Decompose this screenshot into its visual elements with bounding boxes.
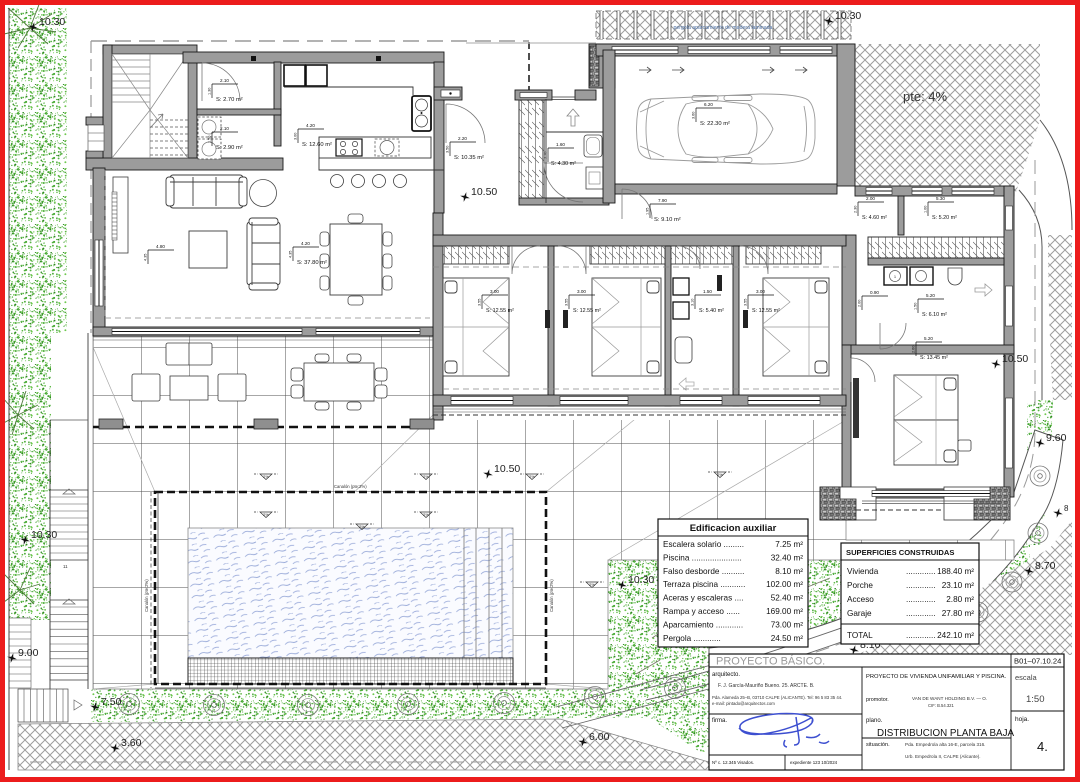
svg-text:expediente 123 10/2024: expediente 123 10/2024	[790, 760, 838, 765]
svg-text:Escalera solario .........: Escalera solario .........	[663, 540, 744, 549]
svg-text:5.20: 5.20	[924, 336, 933, 341]
svg-text:3.00: 3.00	[490, 289, 499, 294]
svg-text:.............: .............	[906, 631, 936, 640]
svg-text:10.30: 10.30	[628, 574, 654, 586]
svg-text:.............: .............	[906, 581, 936, 590]
svg-text:2%: 2%	[423, 512, 429, 517]
svg-text:2.70: 2.70	[544, 152, 548, 159]
svg-text:F. J. García-Mauriño Bueno.: F. J. García-Mauriño Bueno. 25. ARCTE. B…	[718, 683, 814, 689]
svg-text:TOTAL: TOTAL	[847, 631, 873, 640]
svg-text:32.40 m²: 32.40 m²	[771, 553, 804, 562]
svg-text:e-mail: pintado@arquitectos.co: e-mail: pintado@arquitectos.com	[712, 701, 775, 706]
svg-text:PROYECTO DE VIVIENDA UNIFAM: PROYECTO DE VIVIENDA UNIFAMILIAR Y PISCI…	[866, 674, 1007, 680]
svg-text:8: 8	[1064, 504, 1069, 513]
svg-text:Edificacion auxiliar: Edificacion auxiliar	[690, 523, 777, 534]
svg-text:2.60: 2.60	[912, 346, 916, 353]
svg-text:8.70: 8.70	[1035, 560, 1056, 572]
svg-text:DISTRIBUCION PLANTA BAJA: DISTRIBUCION PLANTA BAJA	[877, 728, 1014, 739]
svg-text:2.10: 2.10	[220, 126, 229, 131]
svg-text:2%: 2%	[263, 512, 269, 517]
svg-text:S: 2.70 m²: S: 2.70 m²	[216, 97, 243, 103]
svg-text:7.90: 7.90	[658, 198, 667, 203]
svg-text:4.: 4.	[1037, 739, 1048, 754]
svg-text:.............: .............	[906, 567, 936, 576]
svg-text:3.55: 3.55	[478, 299, 482, 306]
svg-text:Nº c. 12.345 Visados.: Nº c. 12.345 Visados.	[712, 760, 754, 765]
svg-text:3.60: 3.60	[692, 112, 696, 119]
svg-text:S: 22.30 m²: S: 22.30 m²	[700, 121, 730, 127]
svg-text:3.50: 3.50	[446, 146, 450, 153]
svg-text:4.20: 4.20	[301, 241, 310, 246]
svg-text:Aparcamiento ............: Aparcamiento ............	[663, 620, 743, 629]
svg-text:1.50: 1.50	[703, 289, 712, 294]
svg-text:2.00: 2.00	[858, 300, 862, 307]
svg-text:3.00: 3.00	[294, 133, 298, 140]
svg-text:1.00: 1.00	[924, 206, 928, 213]
svg-text:242.10 m²: 242.10 m²	[937, 631, 974, 640]
svg-text:S: 12.60 m²: S: 12.60 m²	[302, 142, 332, 148]
svg-text:4.20: 4.20	[306, 123, 315, 128]
svg-text:Canalón (pte:2%): Canalón (pte:2%)	[549, 579, 554, 612]
svg-text:Terraza piscina ...........: Terraza piscina ...........	[663, 580, 745, 589]
svg-text:Pda. Alameda 25–B, 03710 CALPE: Pda. Alameda 25–B, 03710 CALPE (ALICANTE…	[712, 695, 842, 700]
svg-text:23.10 m²: 23.10 m²	[942, 581, 975, 590]
svg-text:10.30: 10.30	[31, 529, 57, 541]
svg-text:9.60: 9.60	[1046, 432, 1067, 444]
svg-text:10.30: 10.30	[835, 10, 861, 22]
svg-text:VAN DE WANT HOLDING B.V. — O: VAN DE WANT HOLDING B.V. — O.	[912, 696, 987, 701]
svg-text:Urb. Empedrola II, CALPE (Al: Urb. Empedrola II, CALPE (Alicante).	[905, 754, 981, 759]
svg-text:S: 2.90 m²: S: 2.90 m²	[216, 145, 243, 151]
svg-text:8.10 m²: 8.10 m²	[775, 567, 803, 576]
svg-text:2%: 2%	[423, 474, 429, 479]
svg-text:Rampa y acceso ......: Rampa y acceso ......	[663, 607, 740, 616]
svg-text:S: 12.55 m²: S: 12.55 m²	[573, 308, 601, 314]
svg-text:2.20: 2.20	[458, 136, 467, 141]
svg-text:5.30: 5.30	[936, 196, 945, 201]
svg-text:S: 5.40 m²: S: 5.40 m²	[699, 308, 724, 314]
svg-text:S: 12.55 m²: S: 12.55 m²	[752, 308, 780, 314]
svg-text:0.90: 0.90	[870, 290, 879, 295]
svg-text:Piscina ......................: Piscina ......................	[663, 553, 742, 562]
svg-text:9.00: 9.00	[18, 647, 39, 659]
svg-text:1.50: 1.50	[914, 303, 918, 310]
svg-text:firma.: firma.	[712, 718, 727, 724]
svg-text:2%: 2%	[717, 472, 723, 477]
svg-text:promotor.: promotor.	[866, 697, 889, 703]
svg-text:10.50: 10.50	[1002, 353, 1028, 365]
svg-text:3.55: 3.55	[565, 299, 569, 306]
svg-text:S: 10.35 m²: S: 10.35 m²	[454, 155, 484, 161]
svg-text:hoja.: hoja.	[1015, 716, 1029, 723]
svg-text:S: 12.55 m²: S: 12.55 m²	[486, 308, 514, 314]
svg-text:arquitecto.: arquitecto.	[712, 672, 740, 678]
svg-text:pergola aparcamiento de madera: pergola aparcamiento de madera laminada	[674, 25, 773, 31]
svg-text:4.80: 4.80	[156, 244, 165, 249]
svg-text:plano.: plano.	[866, 718, 883, 724]
svg-text:7.25 m²: 7.25 m²	[775, 540, 803, 549]
svg-text:10.50: 10.50	[494, 463, 520, 475]
svg-text:3.00: 3.00	[577, 289, 586, 294]
svg-text:2.00: 2.00	[866, 196, 875, 201]
svg-text:.............: .............	[906, 609, 936, 618]
svg-text:Vivienda: Vivienda	[847, 567, 879, 576]
svg-text:PROYECTO BÁSICO.: PROYECTO BÁSICO.	[716, 655, 825, 668]
svg-text:S: 37.80 m²: S: 37.80 m²	[297, 260, 327, 266]
svg-text:52.40 m²: 52.40 m²	[771, 594, 804, 603]
svg-text:1.50: 1.50	[208, 136, 212, 143]
svg-text:2.80 m²: 2.80 m²	[946, 595, 974, 604]
svg-text:10.30: 10.30	[39, 16, 65, 28]
svg-text:Porche: Porche	[847, 581, 873, 590]
svg-text:S: 5.20 m²: S: 5.20 m²	[932, 215, 957, 221]
svg-text:10.50: 10.50	[471, 186, 497, 198]
svg-text:5.20: 5.20	[926, 293, 935, 298]
svg-text:B01–07.10.24: B01–07.10.24	[1014, 657, 1061, 666]
svg-text:Falso desborde ..........: Falso desborde ..........	[663, 567, 744, 576]
svg-text:escala: escala	[1015, 673, 1038, 682]
svg-text:Pda. Empedrola alta 16-E, par: Pda. Empedrola alta 16-E, parcela 316.	[905, 742, 985, 747]
svg-text:2%: 2%	[359, 524, 365, 529]
svg-text:102.00 m²: 102.00 m²	[766, 580, 803, 589]
svg-text:3.60: 3.60	[121, 737, 142, 749]
svg-text:S: 4.30 m²: S: 4.30 m²	[551, 161, 576, 167]
svg-text:188.40 m²: 188.40 m²	[937, 567, 974, 576]
svg-text:situación.: situación.	[866, 742, 890, 748]
svg-text:Pergola ............: Pergola ............	[663, 634, 721, 643]
svg-text:2%: 2%	[529, 474, 535, 479]
svg-text:2.30: 2.30	[854, 206, 858, 213]
svg-text:pte: 4%: pte: 4%	[903, 89, 948, 104]
svg-text:73.00 m²: 73.00 m²	[771, 620, 804, 629]
svg-text:6.00: 6.00	[589, 731, 610, 743]
svg-text:CIF: B.54.321: CIF: B.54.321	[928, 703, 955, 708]
svg-text:27.80 m²: 27.80 m²	[942, 609, 975, 618]
svg-text:3.55: 3.55	[744, 299, 748, 306]
svg-text:1.95: 1.95	[646, 208, 650, 215]
svg-text:1:50: 1:50	[1026, 694, 1045, 705]
svg-text:Aceras y escaleras ....: Aceras y escaleras ....	[663, 594, 744, 603]
svg-text:Canalón (pte:2%): Canalón (pte:2%)	[144, 579, 149, 612]
svg-text:Canalón (pte:2%): Canalón (pte:2%)	[334, 484, 367, 489]
svg-text:S: 9.10 m²: S: 9.10 m²	[654, 217, 681, 223]
svg-text:2%: 2%	[589, 582, 595, 587]
svg-text:2.10: 2.10	[220, 78, 229, 83]
svg-text:11: 11	[63, 564, 68, 569]
svg-text:169.00 m²: 169.00 m²	[766, 607, 803, 616]
svg-text:1.30: 1.30	[208, 88, 212, 95]
svg-text:.............: .............	[906, 595, 936, 604]
svg-text:SUPERFICIES CONSTRUIDAS: SUPERFICIES CONSTRUIDAS	[846, 548, 954, 557]
svg-text:S: 6.10 m²: S: 6.10 m²	[922, 312, 947, 318]
svg-text:Acceso: Acceso	[847, 595, 874, 604]
svg-text:1.60: 1.60	[556, 142, 565, 147]
svg-text:S: 13.45 m²: S: 13.45 m²	[920, 355, 948, 361]
svg-text:24.50 m²: 24.50 m²	[771, 634, 804, 643]
svg-text:3.00: 3.00	[756, 289, 765, 294]
svg-text:Garaje: Garaje	[847, 609, 872, 618]
svg-text:7.50: 7.50	[101, 696, 122, 708]
svg-text:4.35: 4.35	[144, 254, 148, 261]
svg-text:S: 4.60 m²: S: 4.60 m²	[862, 215, 887, 221]
svg-text:2%: 2%	[263, 474, 269, 479]
svg-text:4.35: 4.35	[289, 251, 293, 258]
svg-text:6.20: 6.20	[704, 102, 713, 107]
svg-text:3.10: 3.10	[691, 299, 695, 306]
